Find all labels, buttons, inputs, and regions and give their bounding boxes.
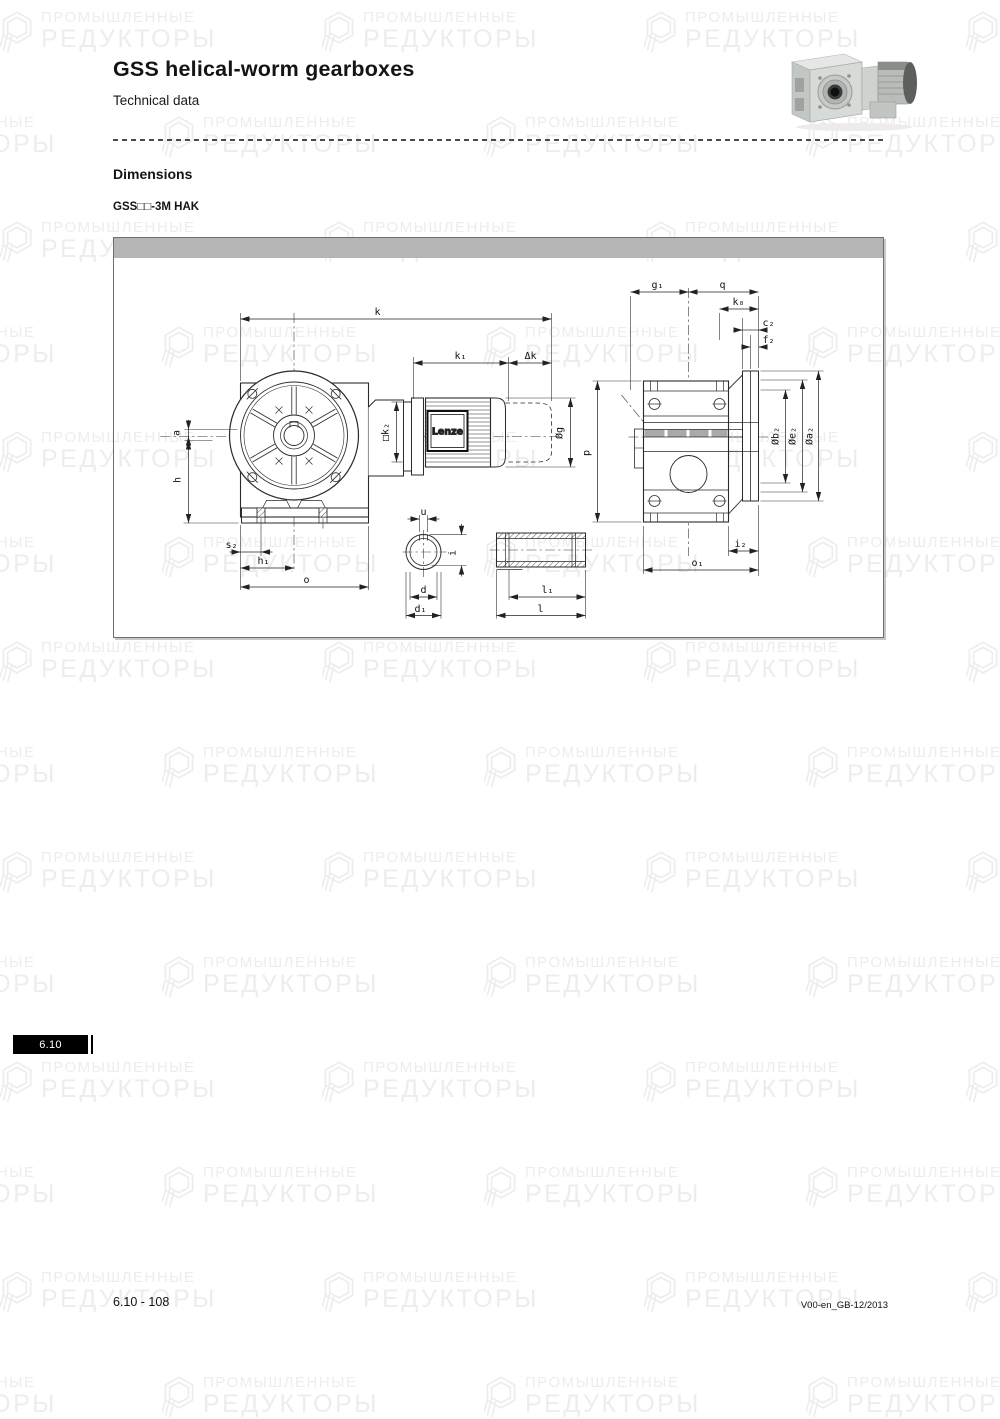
dim-label-h: h [173, 477, 184, 483]
dim-label-i2: i₂ [734, 539, 746, 550]
dim-label-l1: l₁ [541, 585, 553, 596]
footer-doc-code: V00-en_GB-12/2013 [700, 1300, 888, 1311]
dim-label-s2: s₂ [225, 540, 237, 551]
motor-view: Lenze [404, 398, 552, 475]
dim-label-q: q [719, 280, 725, 291]
dim-label-dk: Δk [524, 351, 536, 362]
panel-header-bar [114, 238, 883, 258]
dim-label-c2: c₂ [762, 318, 774, 329]
dim-label-o1: o₁ [691, 558, 703, 569]
dim-label-e2: Øe₂ [787, 427, 799, 445]
dim-label-g1: g₁ [651, 280, 663, 291]
dim-label-u: u [420, 507, 426, 518]
dim-label-d: d [420, 585, 426, 596]
footer-page-number: 6.10 - 108 [113, 1295, 169, 1309]
product-photo [782, 40, 942, 132]
dim-label-h1: h₁ [257, 556, 269, 567]
dim-label-a: a [172, 430, 183, 436]
variant-label: GSS□□-3M HAK [113, 201, 199, 213]
dim-label-l: l [537, 604, 543, 615]
dim-label-g: Øg [554, 427, 566, 439]
brand-label: Lenze [432, 427, 463, 438]
dim-label-k1: k₁ [454, 351, 466, 362]
dashed-separator [113, 139, 886, 141]
dim-label-a2: Øa₂ [804, 427, 816, 445]
front-view [230, 371, 404, 523]
dim-label-k: k [374, 307, 380, 318]
side-view [635, 371, 759, 522]
chapter-tab-line [91, 1035, 93, 1054]
dimension-drawing-panel: Lenze [113, 237, 884, 638]
chapter-tab: 6.10 [13, 1035, 88, 1054]
page-title: GSS helical-worm gearboxes [113, 57, 415, 82]
dim-label-o: o [303, 575, 309, 586]
technical-drawing: Lenze [114, 258, 883, 637]
dim-label-k8: k₈ [732, 297, 744, 308]
hollow-shaft [497, 533, 586, 570]
dim-label-d1: d₁ [414, 604, 426, 615]
dim-label-i: i [448, 550, 459, 556]
dim-label-b2: Øb₂ [770, 427, 782, 445]
dim-label-p: p [582, 450, 593, 456]
dim-label-f2: f₂ [762, 335, 774, 346]
gearbox-photo-illustration [782, 40, 942, 132]
section-heading: Dimensions [113, 166, 192, 182]
dim-label-k2: □k₂ [381, 423, 392, 441]
page-subtitle: Technical data [113, 93, 199, 108]
